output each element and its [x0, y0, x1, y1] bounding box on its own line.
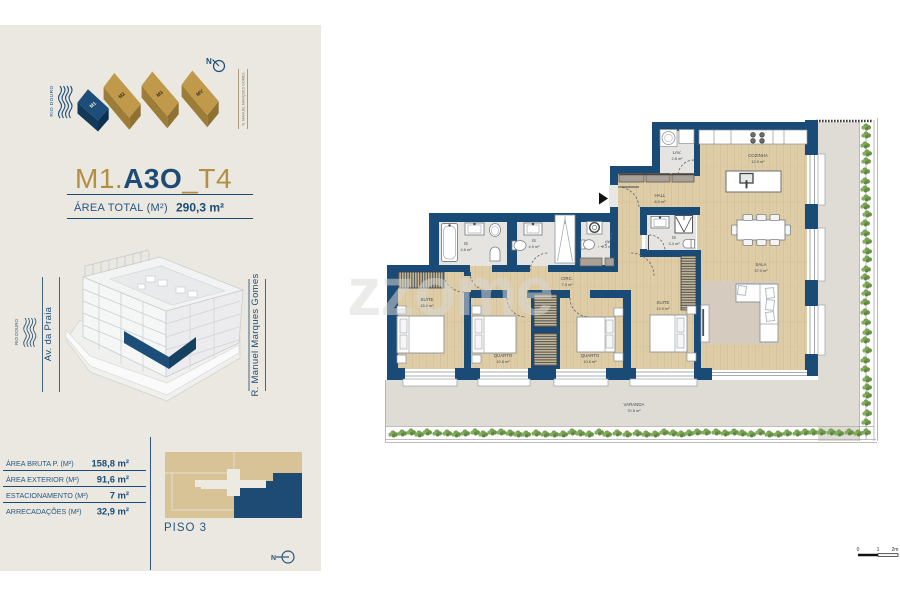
svg-text:158,8 m²: 158,8 m² — [91, 458, 129, 469]
svg-text:R. Manuel Marques Gomes: R. Manuel Marques Gomes — [250, 273, 261, 396]
svg-text:SALA: SALA — [755, 262, 766, 267]
svg-text:N: N — [206, 57, 212, 66]
svg-text:ARRECADAÇÕES (M²): ARRECADAÇÕES (M²) — [6, 507, 81, 516]
svg-text:1: 1 — [877, 547, 880, 553]
svg-text:IS: IS — [605, 240, 609, 244]
svg-text:2.8 m²: 2.8 m² — [671, 156, 683, 161]
svg-text:QUARTO: QUARTO — [581, 353, 600, 358]
svg-text:RIO DOURO: RIO DOURO — [14, 319, 19, 346]
svg-text:IS: IS — [532, 238, 536, 243]
svg-text:2.3 m²: 2.3 m² — [602, 245, 613, 249]
svg-text:91,6 m²: 91,6 m² — [97, 474, 129, 485]
svg-text:10.6 m²: 10.6 m² — [496, 359, 510, 364]
svg-text:8.0 m²: 8.0 m² — [654, 199, 666, 204]
svg-text:7 m²: 7 m² — [110, 490, 129, 501]
svg-text:ESTACIONAMENTO (M²): ESTACIONAMENTO (M²) — [6, 491, 88, 500]
svg-text:zzome: zzome — [347, 253, 553, 330]
svg-text:290,3 m²: 290,3 m² — [176, 201, 224, 215]
svg-text:CIRC.: CIRC. — [561, 276, 573, 281]
svg-text:N: N — [271, 555, 276, 562]
svg-text:PISO 3: PISO 3 — [164, 522, 207, 534]
svg-text:15.2 m²: 15.2 m² — [420, 303, 434, 308]
svg-text:IS: IS — [672, 235, 676, 240]
svg-text:2m: 2m — [892, 547, 899, 553]
svg-text:13.9 m²: 13.9 m² — [656, 306, 670, 311]
svg-text:ÁREA TOTAL (M²): ÁREA TOTAL (M²) — [74, 201, 168, 214]
svg-text:12.9 m²: 12.9 m² — [751, 159, 765, 164]
svg-text:R. MANUEL MARQUES GOMES: R. MANUEL MARQUES GOMES — [242, 72, 246, 126]
svg-text:ÁREA BRUTA P. (M²): ÁREA BRUTA P. (M²) — [6, 459, 74, 468]
svg-text:RIO DOURO: RIO DOURO — [49, 85, 55, 116]
svg-text:M1.A3O_T4: M1.A3O_T4 — [75, 163, 232, 194]
svg-text:COZINHA: COZINHA — [748, 153, 768, 158]
svg-text:ÁREA EXTERIOR (M²): ÁREA EXTERIOR (M²) — [6, 475, 79, 484]
svg-text:4.9 m²: 4.9 m² — [528, 244, 540, 249]
svg-text:LAV.: LAV. — [673, 150, 682, 155]
svg-text:10.6 m²: 10.6 m² — [583, 359, 597, 364]
svg-text:HALL: HALL — [655, 193, 667, 198]
svg-text:4.6 m²: 4.6 m² — [460, 247, 472, 252]
svg-text:Av. da Praia: Av. da Praia — [43, 306, 54, 361]
svg-text:0: 0 — [857, 547, 860, 553]
svg-text:70.5 m²: 70.5 m² — [627, 408, 641, 413]
svg-text:SUITE: SUITE — [657, 300, 670, 305]
svg-text:7.0 m²: 7.0 m² — [561, 282, 573, 287]
svg-text:32,9 m²: 32,9 m² — [97, 506, 129, 517]
svg-text:IS: IS — [464, 241, 468, 246]
svg-text:QUARTO: QUARTO — [494, 353, 513, 358]
svg-text:37.0 m²: 37.0 m² — [754, 268, 768, 273]
svg-text:SUITE: SUITE — [421, 297, 434, 302]
svg-text:VARANDA: VARANDA — [624, 402, 645, 407]
svg-text:3.4 m²: 3.4 m² — [668, 241, 680, 246]
